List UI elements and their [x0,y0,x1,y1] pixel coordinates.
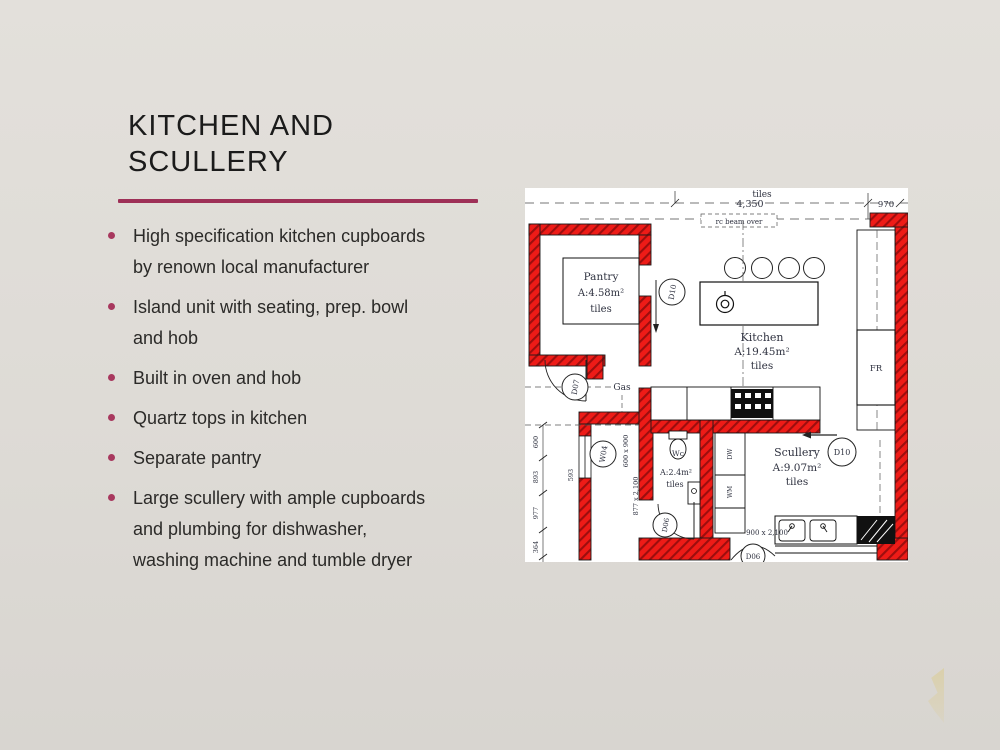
bullet-text: Separate pantry [133,443,261,474]
pantry-room: Pantry A:4.58m² tiles [563,258,639,324]
wc-floor: tiles [666,480,683,489]
title-line-2: SCULLERY [128,145,448,180]
bullet-line: High specification kitchen cupboards [133,221,425,252]
bullet-dot [108,303,115,310]
slide: KITCHEN AND SCULLERY High specification … [0,0,1000,750]
list-item: High specification kitchen cupboards by … [108,221,508,283]
gas-label: Gas [613,383,631,393]
dim-chain-3: 364 [532,541,540,553]
pantry-floor: tiles [590,304,611,315]
bullet-line: Built in oven and hob [133,363,301,394]
bullet-dot [108,232,115,239]
pantry-name: Pantry [584,271,619,283]
door-d06-rear-label: D06 [746,553,761,561]
dim-passage: 593 [567,469,575,481]
list-item: Built in oven and hob [108,363,508,394]
wc-area: A:2.4m² [659,468,692,477]
dim-rear-door: 900 x 2,100 [746,529,788,537]
title-underline [118,199,478,203]
bullet-line: by renown local manufacturer [133,252,425,283]
door-d10-pantry: D10 [653,279,685,333]
fridge-strip: FR [857,230,895,430]
pantry-area: A:4.58m² [577,288,624,299]
dim-chain-2: 977 [532,507,540,519]
kitchen-floor: tiles [751,360,774,372]
bullet-dot [108,374,115,381]
bullet-dot [108,494,115,501]
list-item: Separate pantry [108,443,508,474]
list-item: Large scullery with ample cupboards and … [108,483,508,576]
dim-wc-door: 877 x 2,100 [632,477,640,516]
width-dimension: 4,350 [736,199,763,210]
dim-chain-0: 600 [532,436,540,448]
title-line-1: KITCHEN AND [128,109,448,144]
window-w04 [579,436,591,478]
bullet-line: Island unit with seating, prep. bowl [133,292,408,323]
dim-window-size: 600 x 900 [622,435,630,468]
corner-watermark [928,668,944,723]
floorplan-image: tiles 4,350 970 rc beam over [525,188,908,562]
bullet-dot [108,414,115,421]
list-item: Quartz tops in kitchen [108,403,508,434]
bullet-line: and plumbing for dishwasher, [133,514,425,545]
scullery-name: Scullery [774,446,821,459]
appliance-icon [857,516,895,544]
fridge-label: FR [870,364,883,374]
dim-chain-1: 893 [532,471,540,483]
bullet-text: Quartz tops in kitchen [133,403,307,434]
kitchen-name: Kitchen [741,331,784,344]
island-stools [725,258,825,279]
bullet-line: and hob [133,323,408,354]
bullet-line: Large scullery with ample cupboards [133,483,425,514]
oven-hob-icon [731,389,773,418]
kitchen-room: Kitchen A:19.45m² tiles [651,221,825,420]
dishwasher-label: DW [727,448,734,460]
bullet-text: Large scullery with ample cupboards and … [133,483,425,576]
bullet-list: High specification kitchen cupboards by … [108,221,508,585]
wc-room: Wc A:2.4m² tiles D06 [653,431,700,539]
bullet-line: Quartz tops in kitchen [133,403,307,434]
beam-note: rc beam over [716,218,763,226]
bullet-line: Separate pantry [133,443,261,474]
bullet-line: washing machine and tumble dryer [133,545,425,576]
bullet-dot [108,454,115,461]
kitchen-area: A:19.45m² [733,346,789,358]
list-item: Island unit with seating, prep. bowl and… [108,292,508,354]
toilet-tank [669,431,687,439]
scullery-area: A:9.07m² [772,462,822,474]
right-dimension: 970 [878,200,894,210]
cupboard-column: DW WM [715,433,745,533]
washing-machine-label: WM [727,486,734,498]
bullet-text: High specification kitchen cupboards by … [133,221,425,283]
basin-icon [688,482,700,504]
wc-fixture-label: Wc [672,449,684,458]
door-d10-scullery-label: D10 [834,448,851,457]
bullet-text: Built in oven and hob [133,363,301,394]
scullery-floor: tiles [786,476,809,488]
bullet-text: Island unit with seating, prep. bowl and… [133,292,408,354]
page-title: KITCHEN AND SCULLERY [128,109,448,180]
island-unit [700,282,818,325]
scullery-room: Scullery A:9.07m² tiles D10 [731,432,895,563]
